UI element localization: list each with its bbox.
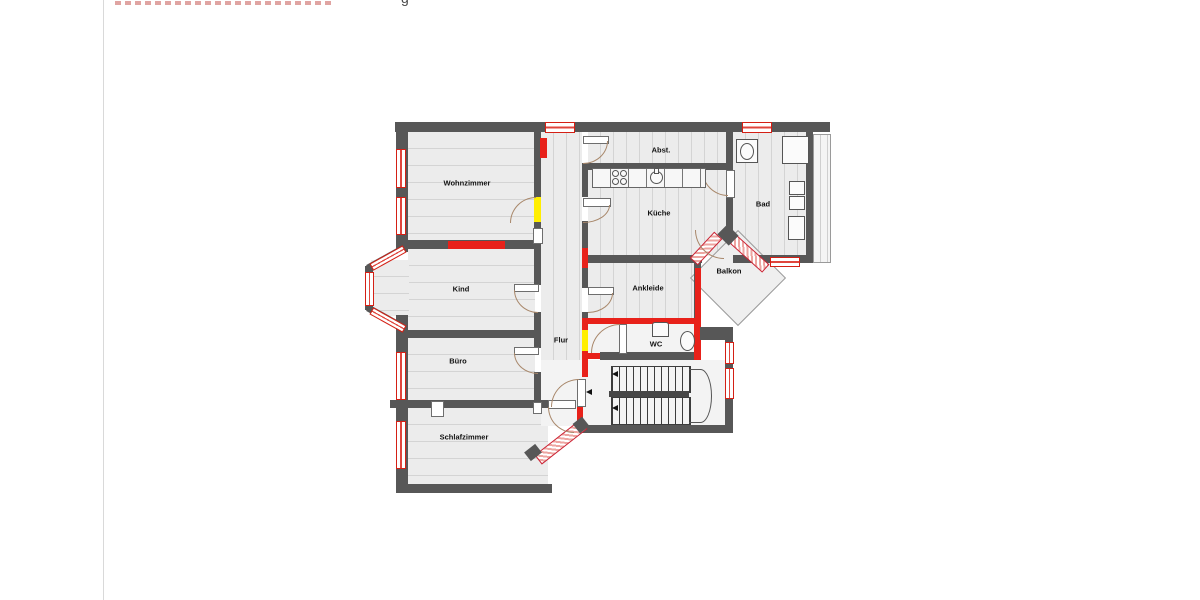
room-label-bad: Bad	[756, 200, 770, 209]
washbasin-bad-2	[789, 196, 805, 210]
room-floor-schlafzimmer	[408, 408, 548, 485]
wall-flur-east-2	[582, 221, 588, 250]
wall-bad-west-upper	[726, 132, 733, 170]
stove-burner-4	[620, 178, 627, 185]
yellow-door-wc	[582, 330, 588, 351]
closed-door-buero-schlafzimmer	[431, 401, 444, 417]
wall-kueche-south	[582, 255, 702, 263]
wall-flur-east-3	[582, 266, 588, 288]
window-stairwell-2	[725, 368, 734, 399]
closed-door-flur-lower	[533, 402, 542, 414]
door-leaf-wc	[619, 324, 627, 354]
room-label-balkon: Balkon	[716, 267, 741, 276]
stove-burner-3	[612, 178, 619, 185]
room-floor-flur	[541, 132, 582, 362]
red-wall-stairhall-nw	[694, 332, 700, 360]
room-label-wohnzimmer: Wohnzimmer	[444, 179, 491, 188]
entry-direction-arrow	[586, 389, 592, 395]
wall-balkon-to-stair	[700, 327, 733, 340]
stair-run-upper	[611, 366, 691, 393]
room-label-kueche: Küche	[648, 209, 671, 218]
stove-burner-1	[612, 170, 619, 177]
kitchen-counter	[592, 168, 706, 188]
room-label-schlafzimmer: Schlafzimmer	[440, 433, 489, 442]
room-label-kind: Kind	[453, 285, 470, 294]
window-top-flur	[545, 122, 575, 133]
stair-direction-arrow-lower	[612, 405, 618, 411]
window-stairwell-1	[725, 342, 734, 364]
toilet-wc	[680, 331, 695, 351]
toilet-bad-bowl	[740, 143, 754, 160]
floor-plan: Wohnzimmer Kind Büro Schlafzimmer Flur K…	[0, 0, 1200, 600]
sink-faucet	[654, 168, 659, 174]
window-bad-south	[770, 257, 800, 267]
red-wall-ankleide-east	[695, 268, 701, 318]
wall-stairhall-north	[600, 352, 700, 360]
shaft-right-of-bad	[813, 134, 831, 263]
window-top-bad	[742, 122, 772, 133]
red-wall-flur-top	[540, 138, 547, 158]
window-schlafzimmer	[396, 421, 406, 469]
room-label-flur: Flur	[554, 336, 568, 345]
wall-flur-west-4	[534, 372, 541, 402]
stair-direction-arrow-upper	[612, 371, 618, 377]
red-wall-wc-north	[582, 318, 701, 324]
washbasin-wc	[652, 322, 669, 337]
closed-door-wohnzimmer-flur	[533, 228, 543, 244]
wall-stairhall-south	[578, 425, 733, 433]
stair-handrail	[609, 391, 689, 397]
room-label-abstellraum: Abst.	[652, 146, 671, 155]
shower-bad	[782, 136, 809, 164]
red-bar-wohnzimmer-kind	[448, 241, 505, 249]
bay-window-left	[365, 272, 374, 306]
door-arc-schlafzimmer	[548, 407, 574, 433]
room-label-wc: WC	[650, 340, 663, 349]
washbasin-bad-1	[789, 181, 805, 195]
wall-flur-west-3	[534, 312, 541, 348]
window-buero	[396, 352, 406, 400]
red-seg-flur-east	[582, 248, 588, 268]
stove-burner-2	[620, 170, 627, 177]
window-wohnzimmer-1	[396, 149, 406, 188]
room-label-ankleide: Ankleide	[632, 284, 663, 293]
stair-run-lower	[611, 397, 691, 425]
wall-bottom-schlafzimmer	[396, 484, 552, 493]
wall-divider-buero-schlafzimmer	[390, 400, 548, 408]
wall-divider-kind-buero	[396, 330, 541, 338]
window-wohnzimmer-2	[396, 197, 406, 235]
stair-turn-arc	[689, 369, 712, 423]
bathtub-bad	[788, 216, 805, 240]
room-label-buero: Büro	[449, 357, 467, 366]
